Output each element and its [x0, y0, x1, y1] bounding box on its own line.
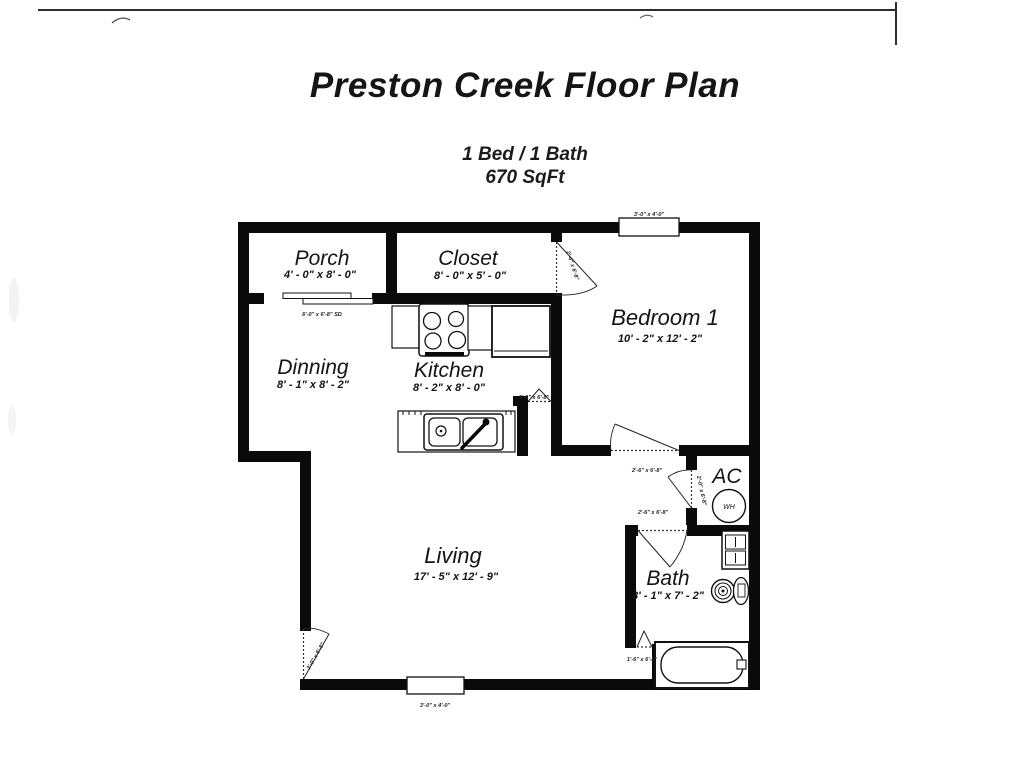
wall-ac-stub-top [686, 456, 697, 470]
wall-porch-closet [386, 222, 397, 304]
linen-door [637, 631, 652, 647]
pantry-door-size: 1'-6" x 6'-8" [519, 395, 550, 401]
walls [238, 222, 760, 690]
floor-plan-svg: WH Porch 4' - 0" x 8' - 0" Closet 8' - 0… [0, 0, 1024, 768]
bedroom1-label: Bedroom 1 [611, 305, 719, 330]
closet-door-size: 2'-4" x 6'-8" [564, 249, 580, 281]
counter-left [392, 306, 419, 348]
sliding-door [283, 293, 373, 304]
water-heater: WH [713, 490, 746, 523]
living-label: Living [424, 543, 482, 568]
double-sink [424, 414, 503, 450]
window-top-size: 3'-0" x 4'-0" [634, 212, 665, 218]
ac-door-size: 2'-0" x 6'-8" [695, 474, 707, 506]
linen-door-size: 1'-6" x 6'-8" [627, 657, 658, 663]
bath-door [638, 531, 687, 568]
porch-label: Porch [295, 247, 350, 270]
window-bottom [407, 677, 464, 694]
porch-dims: 4' - 0" x 8' - 0" [283, 269, 357, 281]
bath-dims: 8' - 1" x 7' - 2" [632, 590, 705, 602]
ac-label: AC [710, 465, 742, 488]
bath-label: Bath [646, 567, 689, 590]
wall-closet-bedroom-stub [551, 222, 562, 242]
vanity-cabinet [722, 531, 749, 569]
windows [407, 218, 679, 694]
wall-living-left [300, 451, 311, 631]
toilet [712, 578, 749, 605]
water-heater-label: WH [723, 504, 736, 511]
wall-bedroom-bottom-left [551, 445, 611, 456]
bath-door-size: 2'-6" x 6'-8" [637, 510, 669, 516]
entry-door-size: 3'-0" x 6'-8" [306, 642, 327, 672]
wall-closet-bottom [372, 293, 562, 304]
wall-kitchen-right [551, 295, 562, 456]
wall-bedroom-bottom-right [679, 445, 760, 456]
opening-annotations: 3'-0" x 4'-0" 3'-0" x 4'-0" 6'-0" x 6'-8… [302, 212, 707, 709]
floor-plan-page: Preston Creek Floor Plan 1 Bed / 1 Bath … [0, 0, 1024, 768]
bedroom-door [611, 424, 680, 451]
fridge [492, 306, 550, 357]
window-top [619, 218, 679, 236]
wall-pantry-left [517, 404, 528, 456]
dinning-dims: 8' - 1" x 8' - 2" [277, 379, 350, 391]
ac-door [668, 470, 692, 508]
closet-dims: 8' - 0" x 5' - 0" [434, 270, 507, 282]
closet-label: Closet [438, 247, 499, 270]
wall-ac-stub-bottom [686, 508, 697, 525]
stove [419, 304, 469, 357]
counter-right [468, 306, 492, 350]
wall-bath-top-left [625, 525, 638, 536]
window-bottom-size: 3'-0" x 4'-0" [420, 703, 451, 709]
living-dims: 17' - 5" x 12' - 9" [414, 571, 499, 583]
wall-porch-stub [238, 293, 264, 304]
kitchen-dims: 8' - 2" x 8' - 0" [413, 382, 486, 394]
sliding-door-size: 6'-0" x 6'-8" SD [302, 312, 342, 318]
wall-left-upper [238, 222, 249, 462]
dinning-label: Dinning [277, 356, 349, 379]
bedroom-door-size: 2'-6" x 6'-8" [631, 468, 663, 474]
bathtub [655, 642, 749, 688]
bedroom1-dims: 10' - 2" x 12' - 2" [618, 333, 703, 345]
wall-top [238, 222, 760, 233]
kitchen-label: Kitchen [414, 359, 484, 382]
